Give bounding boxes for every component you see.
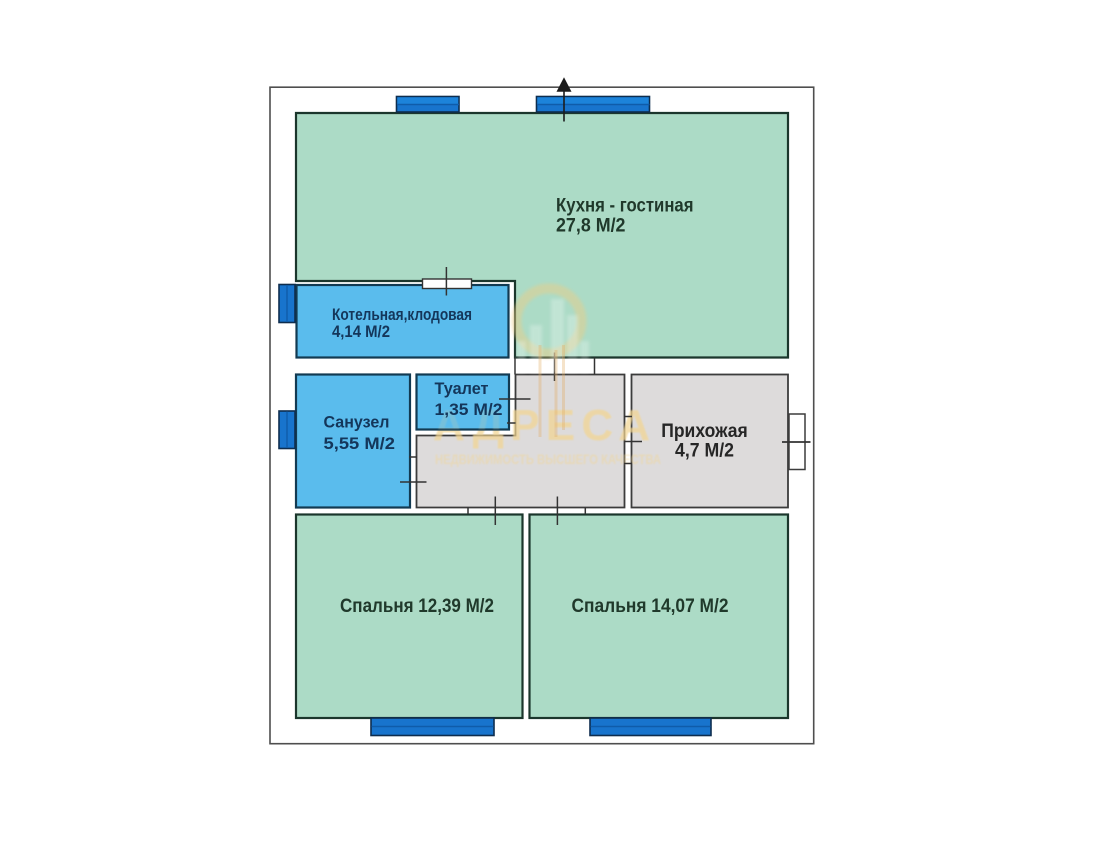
svg-text:5,55 М/2: 5,55 М/2	[324, 435, 396, 453]
svg-text:Туалет: Туалет	[435, 380, 489, 398]
svg-text:Спальня 12,39 М/2: Спальня 12,39 М/2	[340, 595, 494, 617]
svg-text:4,7 М/2: 4,7 М/2	[675, 441, 734, 462]
svg-text:4,14 М/2: 4,14 М/2	[332, 323, 390, 341]
svg-text:Прихожая: Прихожая	[661, 421, 748, 442]
svg-text:1,35 М/2: 1,35 М/2	[435, 401, 503, 419]
svg-text:НЕДВИЖИМОСТЬ ВЫСШЕГО КАЧЕСТВА: НЕДВИЖИМОСТЬ ВЫСШЕГО КАЧЕСТВА	[435, 452, 661, 467]
svg-text:27,8 М/2: 27,8 М/2	[556, 215, 626, 237]
svg-text:Котельная,клодовая: Котельная,клодовая	[332, 306, 472, 324]
svg-text:Санузел: Санузел	[324, 414, 390, 432]
svg-text:Кухня - гостиная: Кухня - гостиная	[556, 195, 694, 217]
svg-text:Спальня 14,07 М/2: Спальня 14,07 М/2	[572, 595, 729, 617]
